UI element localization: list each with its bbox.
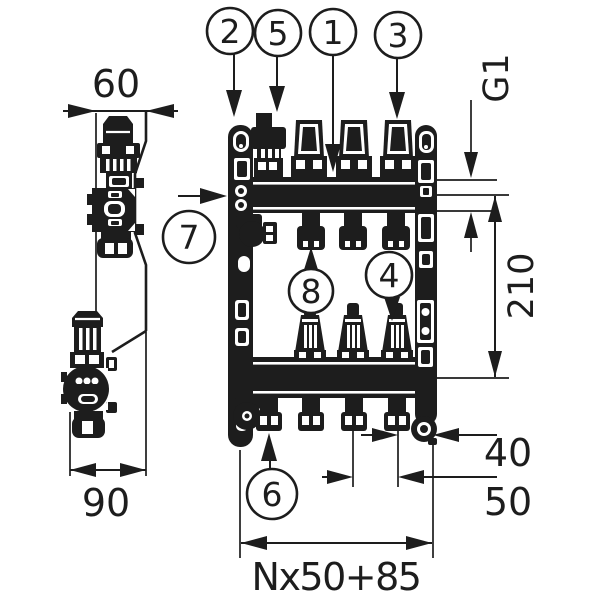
dimension-210: 210 <box>437 195 542 378</box>
callout-7-arrow <box>200 188 227 204</box>
callout-6-arrow <box>261 433 277 461</box>
dim-50-label: 50 <box>484 480 532 524</box>
callout-6-number: 6 <box>262 475 283 514</box>
callout-8: 8 <box>289 247 333 313</box>
dim-total-arrow-left <box>241 536 267 550</box>
dim-210-arrow-up <box>488 196 502 222</box>
dim-90-label: 90 <box>82 481 130 525</box>
callout-3-arrow <box>389 92 405 119</box>
callout-2: 2 <box>207 8 253 117</box>
dim-g1-arrow-up <box>464 212 478 238</box>
callout-5-arrow <box>269 86 285 112</box>
valve-inserts <box>297 213 410 250</box>
manifold-technical-drawing: 60 <box>0 0 600 600</box>
top-fitting-1 <box>291 120 327 177</box>
callout-7-number: 7 <box>179 218 200 257</box>
callout-3-number: 3 <box>388 16 409 55</box>
valve-insert-3 <box>382 213 410 250</box>
top-fitting-2 <box>336 120 372 177</box>
dim-90-arrow-right <box>120 463 146 477</box>
callout-1-number: 1 <box>323 13 344 52</box>
dim-g1-label: G1 <box>477 53 517 102</box>
supply-connection-fittings <box>291 120 416 177</box>
callout-5: 5 <box>255 10 301 112</box>
bottom-outlet-2 <box>341 398 367 431</box>
callout-4: 4 <box>366 252 412 321</box>
callout-7: 7 <box>163 188 227 263</box>
dim-total-arrow-right <box>406 536 432 550</box>
drawing-canvas: 60 <box>0 0 600 600</box>
dim-40-label: 40 <box>484 431 532 475</box>
dim-50-arrow-right <box>398 470 424 484</box>
dim-50-arrow-left <box>327 470 353 484</box>
callout-6: 6 <box>247 433 297 519</box>
dim-60-arrow-right <box>146 104 174 118</box>
dim-60-arrow-left <box>68 104 96 118</box>
callout-2-arrow <box>226 90 242 117</box>
valve-insert-2 <box>339 213 367 250</box>
callout-3: 3 <box>375 12 421 119</box>
dimension-g1: G1 <box>437 53 517 252</box>
bottom-outlet-3 <box>384 398 410 431</box>
supply-bar-end-cap <box>236 214 277 247</box>
top-fitting-3 <box>380 120 416 177</box>
callout-8-number: 8 <box>301 272 322 311</box>
dim-g1-arrow-down <box>464 152 478 178</box>
return-valve-3 <box>381 303 413 360</box>
dim-total-label: Nx50+85 <box>252 555 421 599</box>
air-vent-assembly <box>251 113 286 177</box>
callout-4-number: 4 <box>379 256 400 295</box>
dim-60-label: 60 <box>92 62 140 106</box>
dim-210-label: 210 <box>502 253 542 320</box>
bottom-outlet-1 <box>298 398 324 431</box>
callout-2-number: 2 <box>220 12 241 51</box>
dim-90-arrow-left <box>70 463 96 477</box>
side-view: 60 <box>61 62 178 525</box>
callouts: 2 5 1 3 7 8 <box>163 8 421 519</box>
callout-5-number: 5 <box>268 14 289 53</box>
dim-210-arrow-down <box>488 351 502 377</box>
return-valve-2 <box>337 303 369 360</box>
bottom-outlets <box>256 398 410 431</box>
valve-insert-1 <box>297 213 325 250</box>
